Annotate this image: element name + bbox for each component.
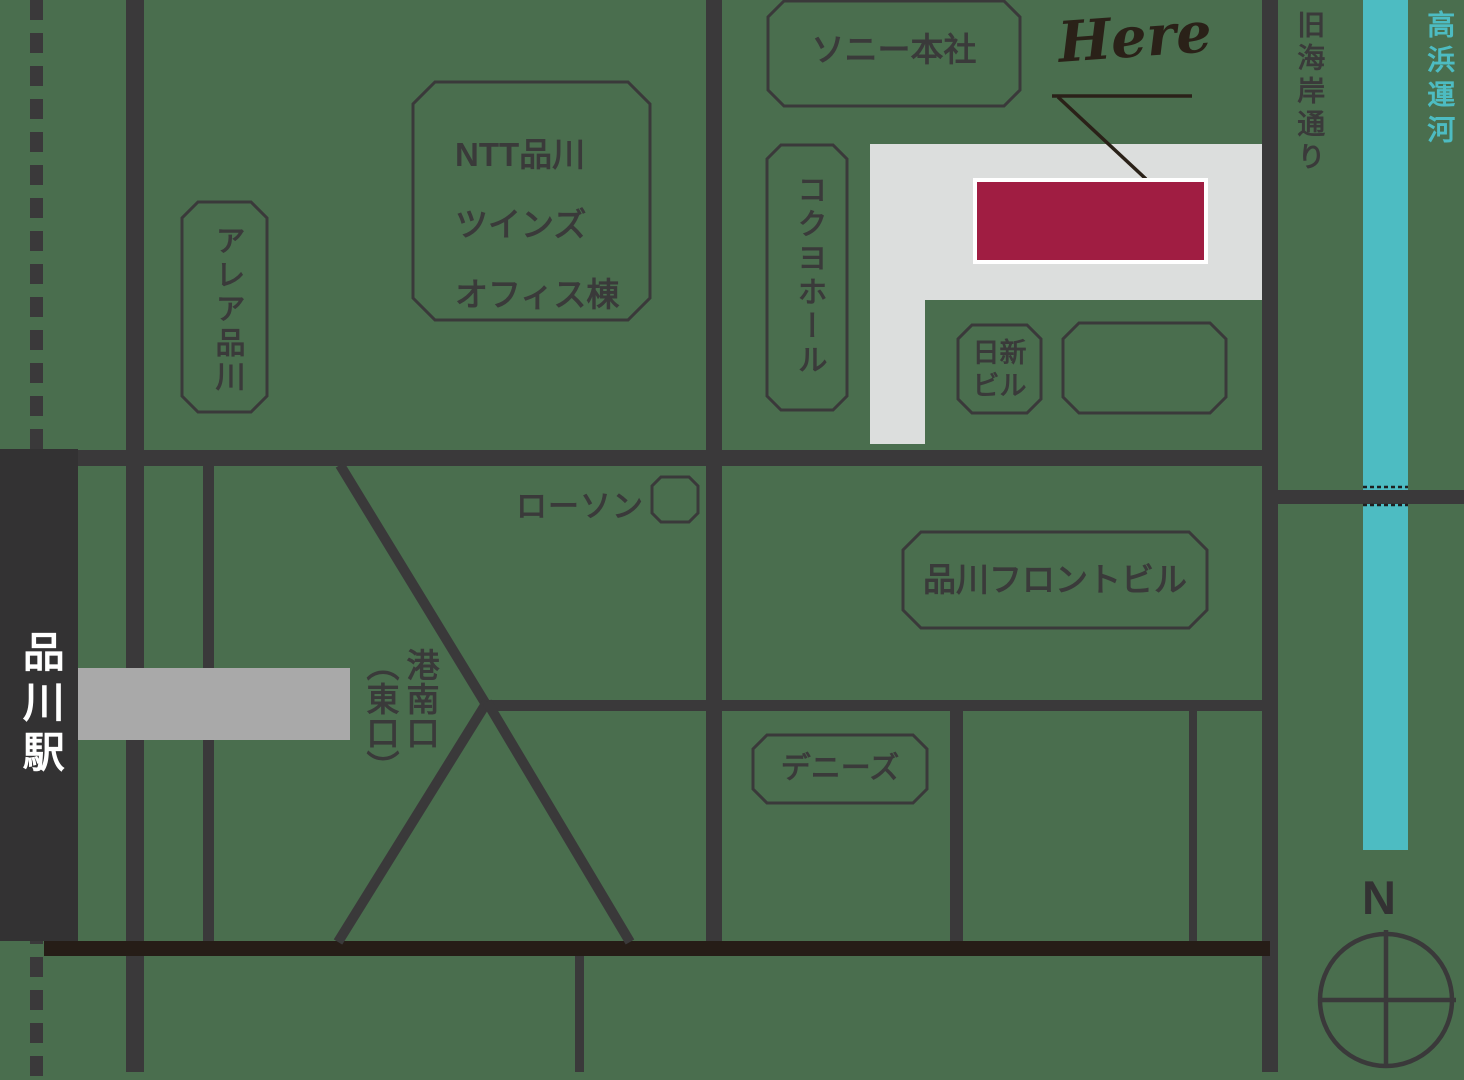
here-target-building bbox=[973, 178, 1208, 264]
exit-label-line2: （東口） bbox=[360, 648, 400, 784]
compass-icon bbox=[1318, 930, 1456, 1068]
ntt-label-line1: NTT品川 bbox=[455, 120, 619, 190]
ntt-label-line3: オフィス棟 bbox=[455, 260, 619, 330]
access-map: 品川駅 アレア品川 NTT品川 ツインズ オフィス棟 ソニー本社 コクヨホール … bbox=[0, 0, 1464, 1080]
here-pointer-line bbox=[1058, 97, 1146, 179]
station-name-label: 品川駅 bbox=[16, 630, 64, 780]
compass-north-label: N bbox=[1362, 871, 1396, 925]
building-label-sony: ソニー本社 bbox=[768, 31, 1020, 69]
building-lawson-outline bbox=[652, 477, 698, 522]
building-label-dennys: デニーズ bbox=[753, 752, 927, 787]
map-shape-layer bbox=[0, 0, 1464, 1080]
building-label-kokuyo: コクヨホール bbox=[791, 174, 826, 378]
road-diagonal-lower-right bbox=[487, 702, 630, 942]
building-label-front: 品川フロントビル bbox=[903, 561, 1207, 599]
building-label-area-shinagawa: アレア品川 bbox=[209, 225, 244, 395]
building-label-lawson: ローソン bbox=[516, 489, 644, 525]
building-label-ntt: NTT品川 ツインズ オフィス棟 bbox=[455, 120, 619, 330]
here-label: Here bbox=[1056, 1, 1200, 75]
ntt-label-line2: ツインズ bbox=[455, 190, 619, 260]
exit-label-line1: 港南口 bbox=[400, 648, 440, 784]
street-label-old-kaigan: 旧海岸通り bbox=[1293, 10, 1325, 175]
building-unnamed-outline bbox=[1063, 323, 1226, 413]
nisshin-label-line2: ビル bbox=[958, 370, 1041, 403]
canal-label-takahama: 高浜運河 bbox=[1423, 10, 1455, 150]
station-exit-label: 港南口 （東口） bbox=[360, 648, 440, 784]
building-label-nisshin: 日新 ビル bbox=[958, 337, 1041, 403]
nisshin-label-line1: 日新 bbox=[958, 337, 1041, 370]
